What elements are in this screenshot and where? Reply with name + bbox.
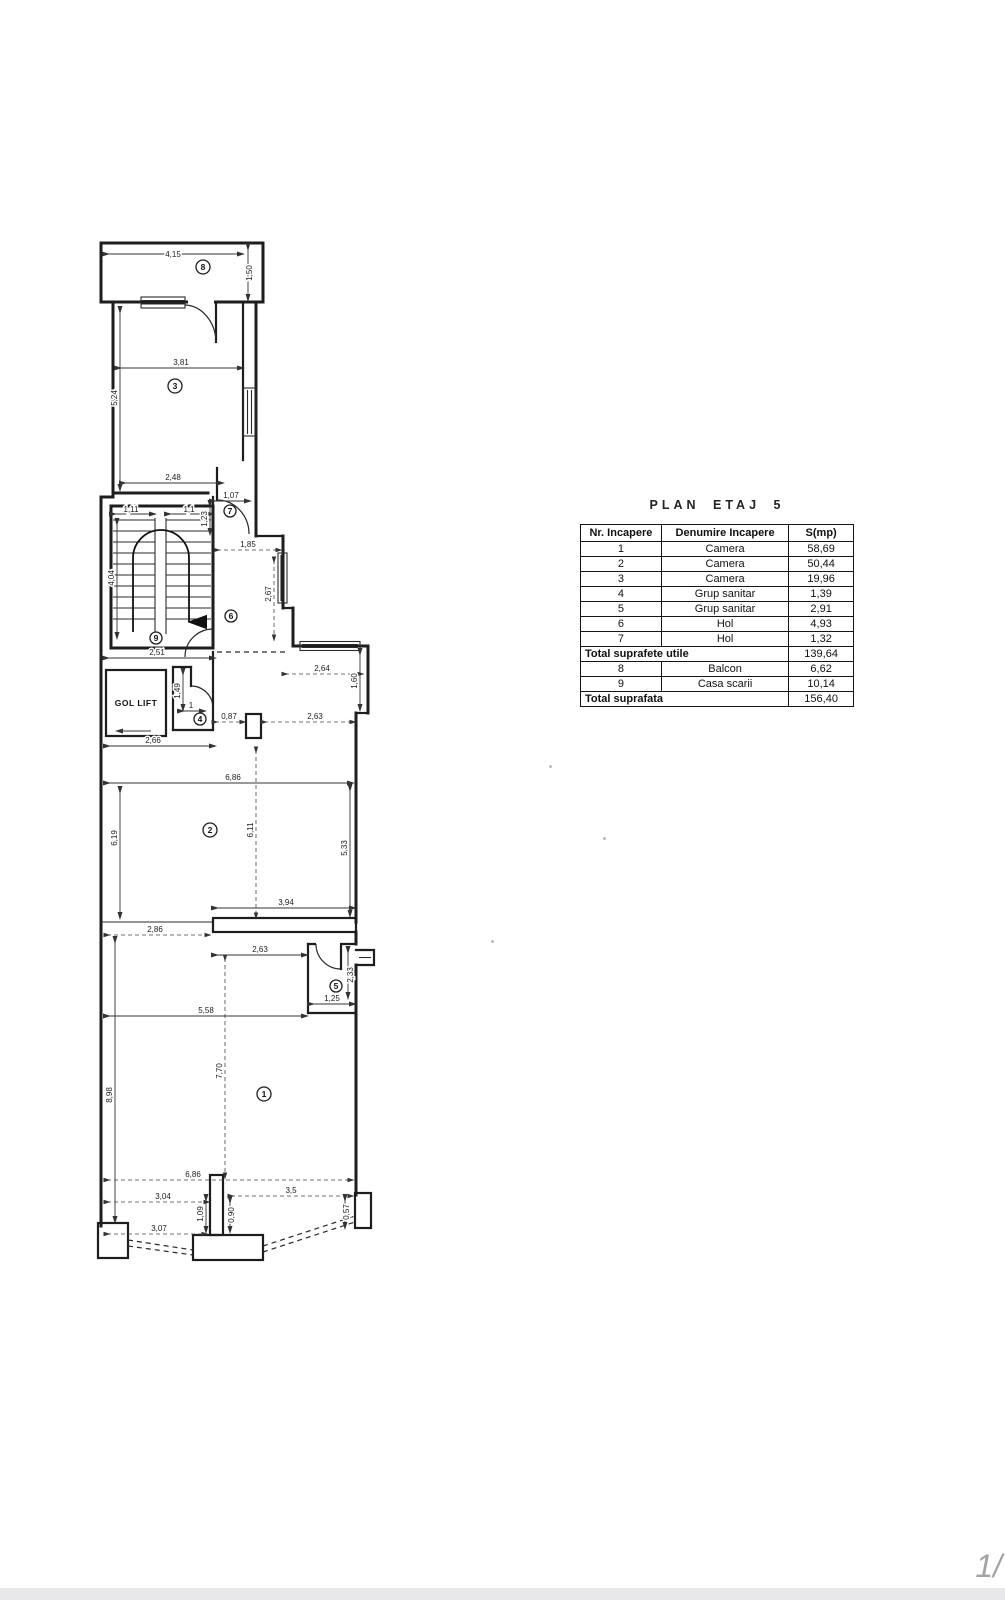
dim-room1-height-mid: 7,70: [215, 1063, 224, 1079]
room-4-number: 4: [198, 714, 203, 724]
cell-name: Casa scarii: [661, 677, 788, 692]
walls: [98, 243, 374, 1260]
plan-title: PLAN ETAJ 5: [580, 498, 854, 512]
table-row: 9 Casa scarii 10,14: [581, 677, 854, 692]
dim-balcony-width: 4,15: [165, 250, 181, 259]
cell-area: 4,93: [789, 617, 854, 632]
dim-ws5-width: 1,25: [324, 994, 340, 1003]
dim-bottom-1: 3,04: [155, 1192, 171, 1201]
dim-room2-height-left: 6,19: [110, 830, 119, 846]
cell-area: 10,14: [789, 677, 854, 692]
total-value: 156,40: [789, 692, 854, 707]
scan-speck: [549, 765, 552, 768]
dim-room1-width-bottom: 6,86: [185, 1170, 201, 1179]
dim-notch-width: 2,64: [314, 664, 330, 673]
dim-stair-height: 4,04: [107, 570, 116, 586]
dim-notch-height: 1,60: [350, 673, 359, 689]
page-number: 1/: [975, 1548, 1002, 1585]
dim-room3-width-bottom: 2,48: [165, 473, 181, 482]
header-nr: Nr. Incapere: [581, 525, 662, 542]
room-1-number: 1: [262, 1089, 267, 1099]
total-utile-value: 139,64: [789, 647, 854, 662]
dim-bottom-3: 3,07: [151, 1224, 167, 1233]
cell-area: 1,32: [789, 632, 854, 647]
dim-ws4-width: 0,87: [221, 712, 237, 721]
dim-ws4-height: 1,49: [173, 683, 182, 699]
area-table-panel: PLAN ETAJ 5 Nr. Incapere Denumire Incape…: [580, 498, 854, 707]
cell-area: 50,44: [789, 557, 854, 572]
bottom-strip: [0, 1588, 1005, 1600]
stair-direction-arrow: [133, 530, 189, 632]
room-8-number: 8: [201, 262, 206, 272]
cell-name: Camera: [661, 542, 788, 557]
scan-speck: [603, 837, 606, 840]
dim-room2-height-mid: 6,11: [246, 822, 255, 838]
lift-shaft-label: GOL LIFT: [115, 698, 158, 708]
dim-hol6-width: 1,85: [240, 540, 256, 549]
floor-plan-drawing: 4,15 1,50 3,81 5,24 2,48 1,07 1,23 1,11 …: [93, 238, 395, 1264]
room-areas-table: Nr. Incapere Denumire Incapere S(mp) 1 C…: [580, 524, 854, 707]
table-header-row: Nr. Incapere Denumire Incapere S(mp): [581, 525, 854, 542]
room-9-number: 9: [154, 633, 159, 643]
cell-nr: 2: [581, 557, 662, 572]
cell-name: Hol: [661, 617, 788, 632]
dim-bottom-6: 0,57: [342, 1204, 351, 1220]
room-6-number: 6: [229, 611, 234, 621]
table-row: 6 Hol 4,93: [581, 617, 854, 632]
table-row: 7 Hol 1,32: [581, 632, 854, 647]
scan-speck: [491, 940, 494, 943]
dim-hall7-height: 1,23: [200, 511, 209, 527]
header-area: S(mp): [789, 525, 854, 542]
dim-bottom-5: 0,90: [227, 1207, 236, 1223]
header-name: Denumire Incapere: [661, 525, 788, 542]
cell-name: Hol: [661, 632, 788, 647]
dim-room2-width: 6,86: [225, 773, 241, 782]
dim-corridor-width: 2,63: [307, 712, 323, 721]
cell-nr: 9: [581, 677, 662, 692]
staircase: [113, 518, 211, 634]
dim-room3-height: 5,24: [110, 390, 119, 406]
table-row: 1 Camera 58,69: [581, 542, 854, 557]
dim-room1-height-left: 8,98: [105, 1087, 114, 1103]
dim-hall7-width: 1,07: [223, 491, 239, 500]
dim-bottom-4: 1,09: [196, 1206, 205, 1222]
cell-nr: 1: [581, 542, 662, 557]
cell-area: 2,91: [789, 602, 854, 617]
room-2-number: 2: [208, 825, 213, 835]
dim-bottom-2: 3,5: [285, 1186, 297, 1195]
room-number-markers: 8 3 7 9 6 4 2 5 1: [150, 260, 342, 1101]
table-row: 8 Balcon 6,62: [581, 662, 854, 677]
dim-balcony-depth: 1,50: [245, 265, 254, 281]
room-5-number: 5: [334, 981, 339, 991]
dim-hol6-height: 2,67: [264, 586, 273, 602]
table-row: 3 Camera 19,96: [581, 572, 854, 587]
scanned-floor-plan-page: 4,15 1,50 3,81 5,24 2,48 1,07 1,23 1,11 …: [0, 0, 1005, 1600]
table-row: 4 Grup sanitar 1,39: [581, 587, 854, 602]
cell-nr: 3: [581, 572, 662, 587]
cell-nr: 5: [581, 602, 662, 617]
table-total-utile-row: Total suprafete utile 139,64: [581, 647, 854, 662]
dim-room2-width-bottom-left: 2,86: [147, 925, 163, 934]
cell-name: Camera: [661, 557, 788, 572]
room-3-number: 3: [173, 381, 178, 391]
table-row: 2 Camera 50,44: [581, 557, 854, 572]
total-label: Total suprafata: [581, 692, 789, 707]
dim-ws4-width1: 1: [189, 701, 194, 710]
cell-area: 19,96: [789, 572, 854, 587]
cell-area: 1,39: [789, 587, 854, 602]
dim-room2-height-right: 5,33: [340, 840, 349, 856]
table-row: 5 Grup sanitar 2,91: [581, 602, 854, 617]
dim-room2-width-bottom: 3,94: [278, 898, 294, 907]
cell-name: Camera: [661, 572, 788, 587]
cell-name: Balcon: [661, 662, 788, 677]
dim-room1-width-mid: 5,58: [198, 1006, 214, 1015]
room-7-number: 7: [228, 506, 233, 516]
dim-stair-width-bottom: 2,51: [149, 648, 165, 657]
dim-stair-width-2: 1,1: [183, 505, 195, 514]
dim-stair-width-1: 1,11: [124, 505, 140, 514]
cell-area: 58,69: [789, 542, 854, 557]
cell-name: Grup sanitar: [661, 587, 788, 602]
cell-nr: 4: [581, 587, 662, 602]
dim-lift-width-bottom: 2,66: [145, 736, 161, 745]
cell-nr: 8: [581, 662, 662, 677]
cell-name: Grup sanitar: [661, 602, 788, 617]
cell-area: 6,62: [789, 662, 854, 677]
cell-nr: 6: [581, 617, 662, 632]
dim-room1-width-top: 2,63: [252, 945, 268, 954]
table-total-row: Total suprafata 156,40: [581, 692, 854, 707]
dimension-labels: 4,15 1,50 3,81 5,24 2,48 1,07 1,23 1,11 …: [105, 250, 359, 1233]
total-utile-label: Total suprafete utile: [581, 647, 789, 662]
cell-nr: 7: [581, 632, 662, 647]
dim-ws5-height: 2,33: [346, 967, 355, 983]
dim-room3-width: 3,81: [173, 358, 189, 367]
